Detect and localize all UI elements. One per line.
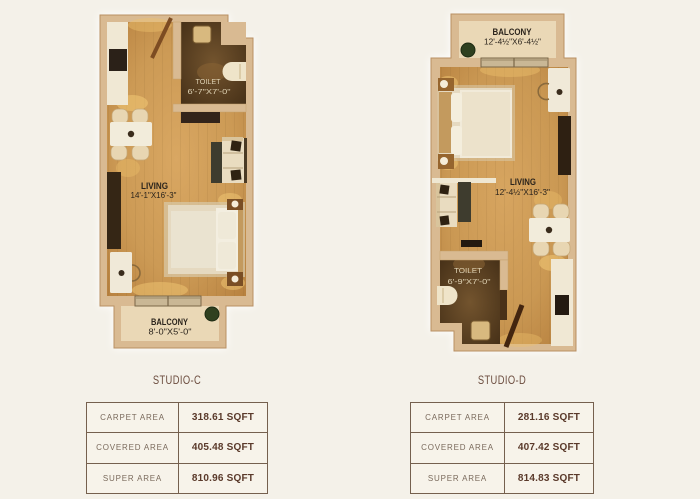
svg-text:12'-4½"X6'-4½": 12'-4½"X6'-4½" bbox=[484, 37, 541, 47]
svg-text:TOILET: TOILET bbox=[454, 266, 482, 275]
svg-text:12'-4½"X16'-3": 12'-4½"X16'-3" bbox=[495, 187, 550, 197]
svg-text:14'-1"X16'-3": 14'-1"X16'-3" bbox=[131, 190, 177, 200]
svg-text:8'-0"X5'-0": 8'-0"X5'-0" bbox=[149, 327, 192, 337]
svg-text:BALCONY: BALCONY bbox=[151, 317, 188, 327]
svg-text:6'-9"X7'-0": 6'-9"X7'-0" bbox=[448, 277, 491, 286]
svg-text:BALCONY: BALCONY bbox=[493, 27, 532, 37]
svg-text:6'-7"X7'-0": 6'-7"X7'-0" bbox=[188, 87, 231, 96]
svg-text:TOILET: TOILET bbox=[196, 77, 221, 86]
